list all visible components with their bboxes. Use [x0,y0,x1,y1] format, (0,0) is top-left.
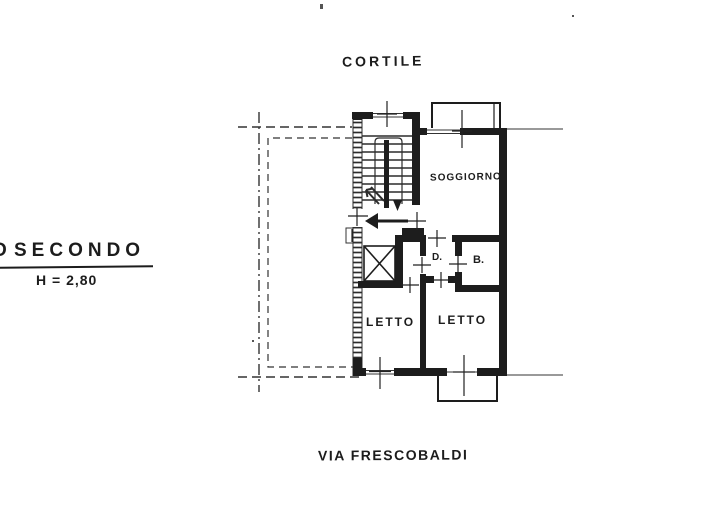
interior-walls [358,228,507,368]
entry-door-arrow [365,213,408,229]
room-label-bedroom-right: LETTO [438,313,487,327]
floor-label-fragment: O [0,240,7,262]
street-label: VIA FRESCOBALDI [318,446,468,463]
extension-lines [507,129,563,375]
ceiling-height-label: H = 2,80 [36,272,97,288]
floor-plan-document: CORTILE O SECONDO H = 2,80 SOGGIORNO D. … [0,0,715,507]
courtyard-label: CORTILE [342,52,425,69]
stairwell [362,136,412,211]
room-label-hallway: D. [432,252,442,263]
room-label-living: SOGGIORNO [430,171,502,183]
stair-down-arrow [393,200,402,211]
room-label-bathroom: B. [473,254,484,266]
elevator-shaft [364,246,395,281]
room-label-bedroom-left: LETTO [366,315,415,329]
courtyard-boundary [238,112,362,392]
floor-level-label: SECONDO [14,240,145,262]
bottom-balcony [438,376,497,401]
stair-stringer [384,140,389,208]
top-balcony [432,103,500,128]
